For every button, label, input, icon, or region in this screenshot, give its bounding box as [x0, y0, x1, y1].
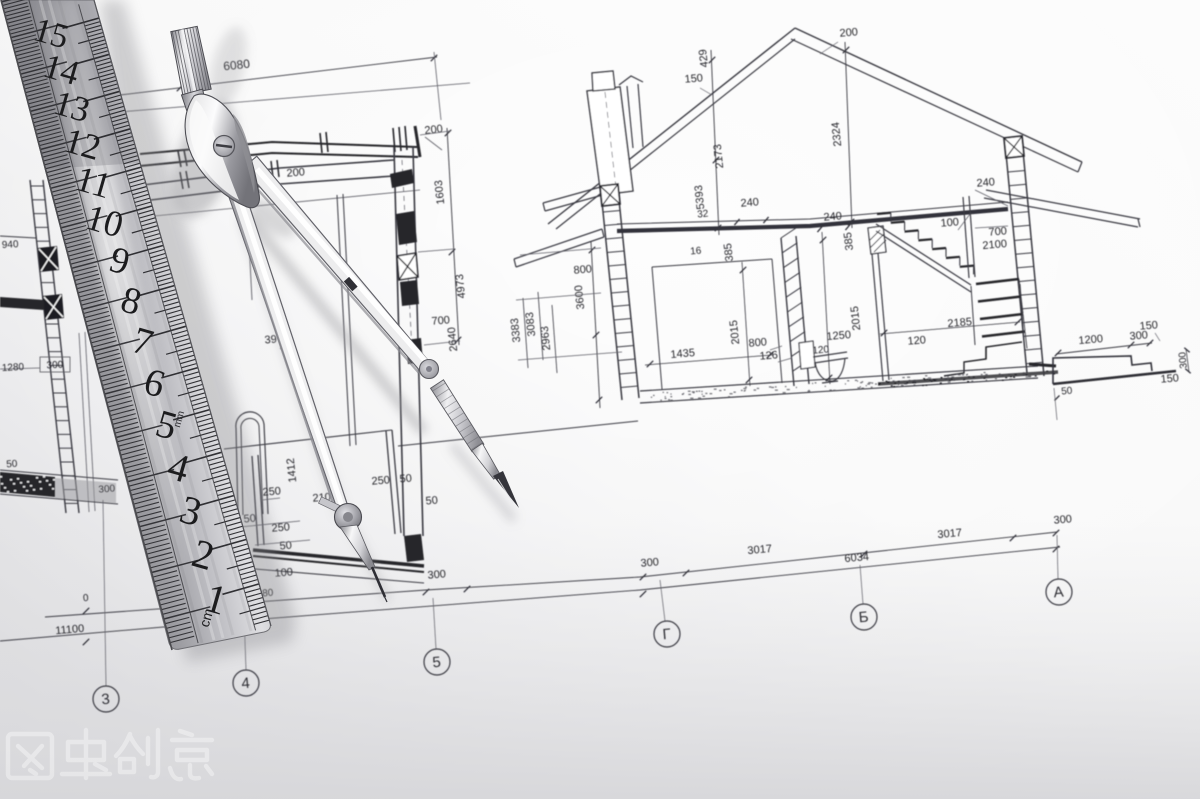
- svg-text:150: 150: [684, 72, 703, 86]
- svg-text:240: 240: [740, 196, 759, 210]
- svg-text:300: 300: [1129, 329, 1148, 343]
- svg-text:100: 100: [940, 216, 959, 230]
- svg-text:240: 240: [976, 176, 995, 190]
- svg-text:3017: 3017: [747, 543, 772, 557]
- svg-text:800: 800: [748, 336, 767, 350]
- svg-text:150: 150: [1160, 372, 1179, 386]
- svg-text:2173: 2173: [712, 144, 726, 170]
- svg-text:4: 4: [241, 675, 251, 693]
- svg-text:240: 240: [823, 210, 842, 224]
- svg-text:50: 50: [399, 473, 412, 486]
- svg-text:А: А: [1053, 584, 1064, 602]
- svg-text:385: 385: [722, 243, 736, 263]
- svg-text:700: 700: [431, 314, 450, 328]
- svg-text:1435: 1435: [670, 347, 695, 361]
- svg-text:120: 120: [812, 344, 830, 356]
- svg-text:2100: 2100: [982, 238, 1007, 252]
- svg-text:4973: 4973: [454, 274, 468, 300]
- svg-text:50: 50: [1061, 386, 1073, 398]
- svg-text:Г: Г: [662, 626, 672, 644]
- svg-text:2015: 2015: [728, 320, 742, 346]
- svg-text:940: 940: [2, 239, 20, 251]
- svg-text:32: 32: [697, 209, 709, 221]
- svg-text:2324: 2324: [830, 122, 844, 148]
- svg-text:1412: 1412: [285, 458, 299, 484]
- svg-text:800: 800: [573, 263, 592, 277]
- svg-text:2015: 2015: [849, 306, 863, 332]
- svg-text:120: 120: [907, 334, 926, 348]
- svg-text:11100: 11100: [55, 623, 85, 637]
- svg-text:1603: 1603: [433, 180, 447, 206]
- svg-text:Б: Б: [858, 609, 869, 627]
- svg-text:200: 200: [286, 166, 305, 180]
- svg-text:385: 385: [842, 232, 856, 252]
- svg-text:39: 39: [264, 334, 277, 347]
- svg-text:5: 5: [432, 654, 442, 672]
- svg-text:1250: 1250: [826, 329, 851, 343]
- svg-text:250: 250: [371, 474, 390, 488]
- svg-text:50: 50: [425, 495, 438, 508]
- svg-text:300: 300: [427, 568, 446, 582]
- svg-text:429: 429: [697, 49, 711, 69]
- svg-text:300: 300: [98, 483, 116, 495]
- svg-text:200: 200: [839, 26, 858, 40]
- svg-text:200: 200: [424, 123, 444, 137]
- svg-text:6034: 6034: [844, 551, 869, 565]
- svg-text:5393: 5393: [693, 185, 707, 211]
- svg-text:3600: 3600: [573, 285, 587, 311]
- svg-text:50: 50: [6, 459, 18, 471]
- svg-text:3: 3: [101, 691, 111, 709]
- svg-text:300: 300: [1053, 513, 1072, 527]
- svg-text:250: 250: [262, 485, 281, 499]
- svg-text:2640: 2640: [446, 327, 460, 353]
- svg-text:3383: 3383: [509, 318, 523, 344]
- svg-text:16: 16: [690, 246, 702, 258]
- svg-text:3083: 3083: [524, 312, 538, 338]
- svg-text:1200: 1200: [1078, 333, 1103, 347]
- svg-text:300: 300: [640, 556, 659, 570]
- svg-text:3017: 3017: [937, 527, 962, 541]
- svg-text:300: 300: [46, 360, 64, 372]
- svg-text:1280: 1280: [2, 362, 25, 374]
